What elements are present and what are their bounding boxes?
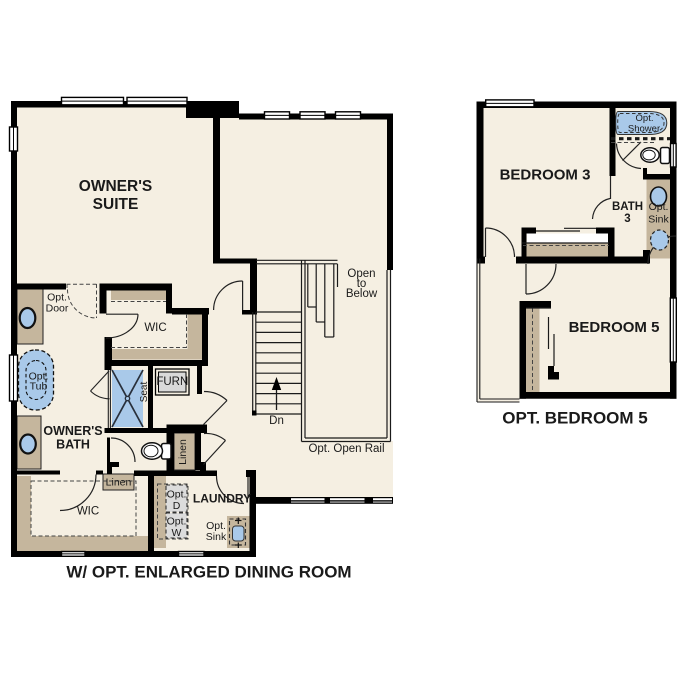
svg-text:OWNER'S: OWNER'S — [79, 178, 152, 195]
svg-text:Linen: Linen — [106, 477, 132, 489]
svg-text:Door: Door — [46, 303, 69, 315]
svg-text:Tub: Tub — [30, 381, 48, 393]
svg-text:BATH: BATH — [56, 438, 90, 452]
svg-text:WIC: WIC — [77, 506, 99, 518]
svg-text:D: D — [173, 500, 181, 512]
svg-text:Opt.: Opt. — [636, 113, 654, 124]
svg-text:BEDROOM 5: BEDROOM 5 — [569, 319, 660, 336]
svg-text:BATH: BATH — [612, 201, 643, 213]
svg-text:Opt. Open Rail: Opt. Open Rail — [308, 443, 384, 455]
svg-text:SUITE: SUITE — [93, 196, 139, 213]
svg-text:WIC: WIC — [144, 322, 166, 334]
svg-text:LAUNDRY: LAUNDRY — [193, 492, 251, 506]
svg-text:Sink: Sink — [206, 531, 227, 543]
svg-text:OWNER'S: OWNER'S — [43, 424, 102, 438]
svg-text:W/ OPT. ENLARGED DINING ROOM: W/ OPT. ENLARGED DINING ROOM — [66, 563, 351, 582]
svg-text:3: 3 — [624, 213, 630, 225]
svg-text:BEDROOM 3: BEDROOM 3 — [500, 167, 591, 184]
svg-text:Shower: Shower — [628, 123, 660, 134]
svg-text:Seat: Seat — [139, 381, 150, 402]
svg-text:FURN: FURN — [156, 376, 188, 388]
svg-text:Sink: Sink — [648, 214, 669, 226]
svg-text:W: W — [172, 527, 182, 539]
svg-text:Opt.: Opt. — [649, 201, 669, 213]
svg-text:Linen: Linen — [177, 439, 189, 465]
svg-text:Dn: Dn — [269, 415, 284, 427]
svg-text:Opt.: Opt. — [167, 489, 187, 501]
svg-text:OPT. BEDROOM 5: OPT. BEDROOM 5 — [502, 409, 647, 428]
svg-text:Opt.: Opt. — [167, 516, 187, 528]
svg-text:Below: Below — [346, 288, 378, 300]
